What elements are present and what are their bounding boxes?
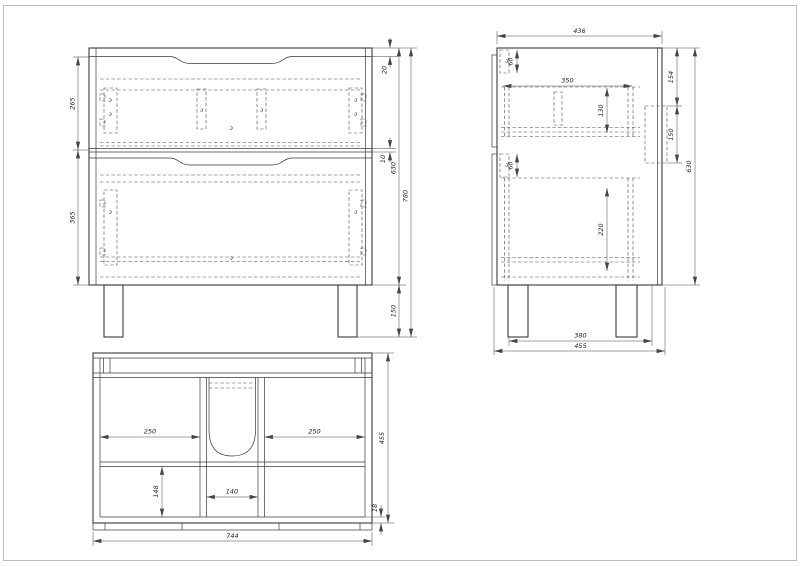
dim-label-center-bay: 140 [226,488,238,496]
dim-label-bottom-drawer-box: 220 [597,223,605,235]
side-view: 436 350 130 60 60 220 154 150 [492,27,700,355]
dim-label-mid-rail: 60 [507,161,515,169]
dim-label-cutout-height: 150 [667,128,675,140]
dim-label-total-height: 780 [402,190,410,202]
dim-label-cutout-offset: 154 [667,71,675,83]
dim-label-drawer-gap: 10 [379,155,387,163]
plan-carcass [93,353,372,523]
dim-label-drawer-top-height: 265 [69,97,77,109]
dim-label-leg-height: 150 [390,305,398,317]
dim-label-front-panel: 18 [371,504,379,512]
plan-front-panel [93,523,372,530]
side-top-drawer-front [492,55,497,147]
side-hidden-lines [500,50,667,281]
dim-label-base-depth: 455 [574,342,586,350]
front-top-drawer-hidden-lines [100,79,366,146]
side-dimensions: 436 350 130 60 60 220 154 150 [494,27,700,355]
front-bottom-drawer-hidden-lines [100,175,366,277]
dim-label-drawer-depth: 350 [561,77,573,85]
dim-label-front-bay-depth: 148 [152,485,160,497]
plan-view: 250 250 140 148 455 18 744 [93,353,394,546]
dim-label-carcass-height: 630 [390,162,398,174]
back-cutout [645,106,667,163]
dim-label-left-bay: 250 [144,428,156,436]
plumbing-cutout [209,378,256,457]
dim-label-top-rail: 60 [507,57,515,65]
dim-label-top-panel: 20 [381,66,389,74]
top-drawer-handle-recess [89,57,372,64]
front-carcass [89,48,372,285]
dim-label-top-depth: 436 [573,27,585,35]
dim-label-drawer-bottom-height: 365 [69,211,77,223]
sheet-frame [4,6,797,561]
side-leg-back [616,285,637,337]
dim-label-plan-depth: 455 [378,432,386,444]
front-leg-right [338,285,357,337]
front-leg-left [104,285,123,337]
front-dimensions: 265 365 20 10 630 150 780 [69,38,418,337]
dim-label-right-bay: 250 [308,428,320,436]
bottom-drawer-handle-recess [89,158,372,165]
side-bottom-drawer-front [492,154,497,285]
drawing-sheet: 265 365 20 10 630 150 780 [0,0,800,566]
dim-label-top-drawer-box: 130 [597,104,605,116]
cad-drawing: 265 365 20 10 630 150 780 [0,0,800,566]
front-view: 265 365 20 10 630 150 780 [69,38,418,337]
dim-label-leg-spacing: 380 [574,332,586,340]
side-leg-front [508,285,528,337]
dim-label-side-carcass-height: 630 [685,160,693,172]
dim-label-plan-width: 744 [226,532,238,540]
side-carcass [497,48,662,285]
